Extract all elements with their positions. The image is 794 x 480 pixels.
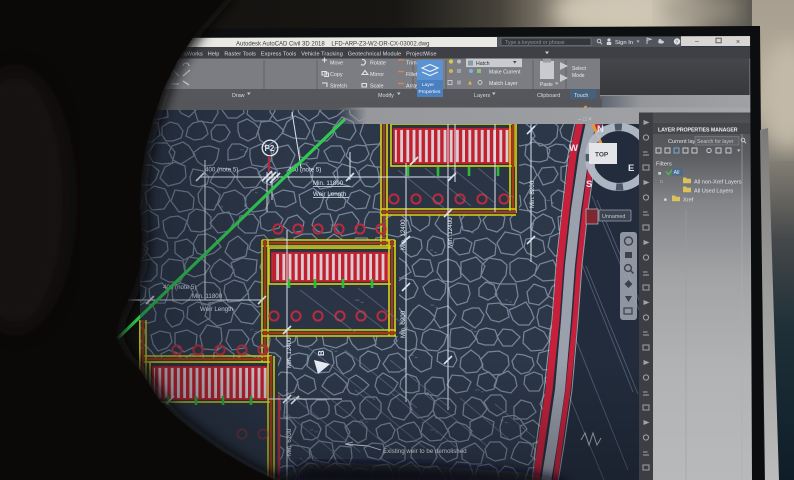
svg-text:Weir Length: Weir Length (313, 191, 347, 198)
svg-text:All: All (674, 170, 680, 176)
svg-text:Rotate: Rotate (370, 61, 386, 67)
svg-text:All Used Layers: All Used Layers (694, 189, 733, 195)
svg-text:N: N (597, 124, 604, 135)
svg-text:Min. 12400: Min. 12400 (447, 217, 454, 248)
svg-text:Draw: Draw (232, 93, 245, 99)
svg-text:□: □ (660, 179, 663, 184)
svg-text:Select: Select (572, 66, 587, 72)
svg-text:Mode: Mode (572, 73, 585, 79)
svg-text:Search for layer: Search for layer (697, 139, 734, 145)
svg-text:■: ■ (658, 171, 661, 177)
svg-text:Current laye: Current laye (668, 139, 698, 145)
svg-text:Type a keyword or phrase: Type a keyword or phrase (505, 40, 565, 46)
svg-text:Trim: Trim (406, 61, 417, 67)
svg-text:Match Layer: Match Layer (489, 81, 518, 87)
svg-text:Make Current: Make Current (489, 70, 521, 76)
svg-text:S: S (586, 179, 592, 190)
svg-text:All non-Xref Layers: All non-Xref Layers (694, 180, 742, 186)
svg-text:Modify: Modify (378, 93, 394, 99)
svg-text:Filters: Filters (656, 162, 672, 168)
svg-text:Properties: Properties (419, 89, 441, 95)
svg-text:Clipboard: Clipboard (537, 93, 560, 99)
svg-text:Scale: Scale (370, 84, 384, 90)
svg-text:Sign In: Sign In (615, 40, 633, 46)
svg-text:Mirror: Mirror (370, 72, 384, 78)
svg-text:Autodesk InfraWorks Help R: Autodesk InfraWorks Help Raster Tools Ex… (150, 52, 437, 58)
svg-text:– □ ×: – □ × (578, 117, 592, 123)
svg-text:■: ■ (664, 197, 667, 202)
svg-text:Xref: Xref (683, 198, 694, 204)
svg-text:Paste: Paste (540, 82, 553, 88)
svg-text:Copy: Copy (330, 72, 343, 78)
svg-text:TOP: TOP (595, 152, 609, 159)
svg-text:Min. 8200: Min. 8200 (529, 180, 536, 208)
svg-text:W: W (569, 143, 578, 154)
svg-text:?: ? (675, 40, 678, 46)
svg-text:Autodesk AutoCAD Civil 3D 2018: Autodesk AutoCAD Civil 3D 2018 LFD-ARP-Z… (236, 41, 429, 47)
svg-text:Layer: Layer (422, 82, 434, 88)
svg-text:Min. 12400: Min. 12400 (400, 219, 407, 250)
svg-text:Hatch: Hatch (476, 61, 490, 67)
svg-text:LAYER PROPERTIES MANAGER: LAYER PROPERTIES MANAGER (658, 128, 738, 134)
svg-text:–: – (695, 39, 699, 46)
svg-text:×: × (736, 39, 740, 46)
svg-text:Stretch: Stretch (330, 84, 347, 90)
svg-text:Layers: Layers (474, 93, 490, 99)
svg-text:Fillet: Fillet (406, 72, 418, 78)
svg-text:Move: Move (330, 61, 343, 67)
svg-text:Unnamed: Unnamed (602, 214, 625, 220)
svg-text:Touch: Touch (574, 93, 588, 99)
svg-text:E: E (628, 163, 634, 174)
svg-text:Min. 11800: Min. 11800 (313, 180, 344, 187)
